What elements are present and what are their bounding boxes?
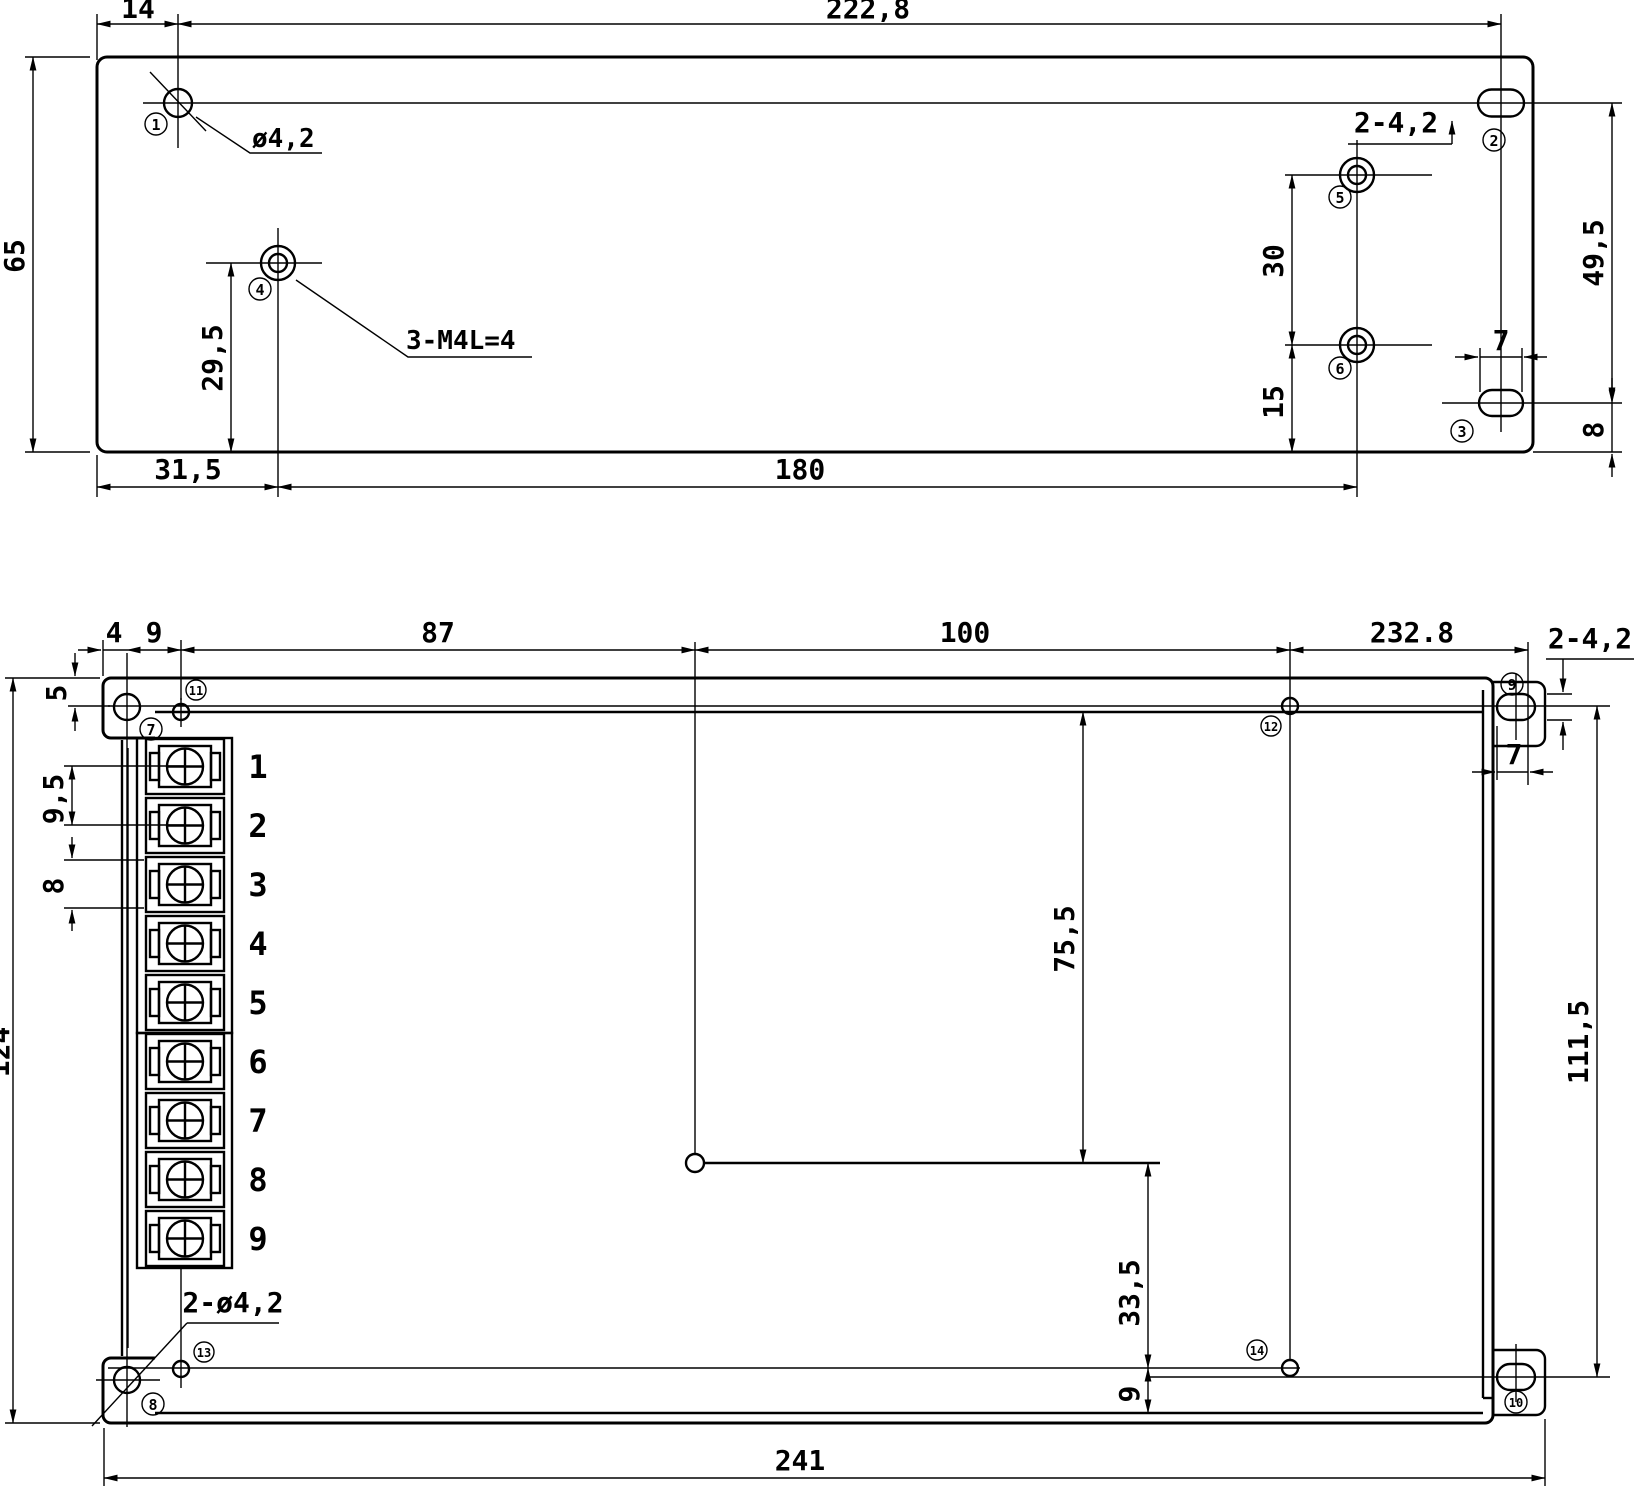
terminal-4 <box>146 916 224 971</box>
slot-pair-label-top: 2-4,2 <box>1354 106 1438 139</box>
terminal-8-number: 8 <box>248 1161 267 1199</box>
callout-12-number: 12 <box>1264 720 1278 734</box>
dim-49-5: 49,5 <box>1577 103 1612 403</box>
dim-75-5: 75,5 <box>1048 712 1083 1163</box>
dim-31-5-value: 31,5 <box>154 453 221 486</box>
dim-33-5-value: 33,5 <box>1113 1259 1146 1326</box>
dim-9-value: 9 <box>146 616 163 649</box>
terminal-6 <box>146 1034 224 1089</box>
dim-100-value: 100 <box>940 616 991 649</box>
terminal-2-number: 2 <box>248 807 267 845</box>
slot-pair-label-bottom: 2-4,2 <box>1546 622 1634 750</box>
dim-111-5-value: 111,5 <box>1562 1000 1595 1084</box>
top-view: ø4,2 1 4 3-M4L=4 5 6 <box>0 0 1622 497</box>
terminal-1-number: 1 <box>248 748 267 786</box>
dim-7-value: 7 <box>1493 324 1510 357</box>
bottom-view-body-outline <box>103 678 1493 1423</box>
dim-9-5-value: 9,5 <box>37 774 70 825</box>
dim-30: 30 <box>1257 175 1292 345</box>
callout-2-number: 2 <box>1489 132 1498 150</box>
callout-8-number: 8 <box>148 1396 157 1414</box>
callout-11-number: 11 <box>189 684 203 698</box>
dim-180-value: 180 <box>775 453 826 486</box>
dim-8-right: 8 <box>1533 378 1622 477</box>
dim-232-8-value: 232.8 <box>1370 616 1454 649</box>
callout-8: 8 <box>142 1393 164 1415</box>
callout-4-number: 4 <box>255 281 264 299</box>
terminal-7-number: 7 <box>248 1102 267 1140</box>
dim-15-value: 15 <box>1257 385 1290 419</box>
dim-5-value: 5 <box>40 685 73 702</box>
slot-pair-label-text: 2-4,2 <box>1548 622 1632 655</box>
dim-111-5: 111,5 <box>1562 706 1597 1377</box>
dim-4-value: 4 <box>106 616 123 649</box>
dim-87-value: 87 <box>421 616 455 649</box>
dim-241-value: 241 <box>775 1444 826 1477</box>
callout-10-number: 10 <box>1509 1396 1523 1410</box>
terminal-9 <box>146 1211 224 1266</box>
dim-180: 180 <box>278 453 1357 487</box>
terminal-5 <box>146 975 224 1030</box>
callout-5: 5 <box>1329 186 1351 208</box>
callout-4: 4 <box>249 278 271 300</box>
dim-33-5: 33,5 <box>1113 1163 1148 1368</box>
callout-13-number: 13 <box>197 1346 211 1360</box>
callout-1: 1 <box>145 113 167 135</box>
slot-10 <box>1497 1344 1535 1402</box>
terminal-3-number: 3 <box>248 866 267 904</box>
bottom-view: 9 10 1 2 3 4 5 6 <box>0 616 1634 1486</box>
dim-9: 9 <box>127 616 181 650</box>
terminal-7 <box>146 1093 224 1148</box>
hole-pair-label-text: 2-ø4,2 <box>182 1286 283 1319</box>
center-hole <box>686 1154 704 1172</box>
dim-100: 100 <box>695 616 1290 650</box>
callout-7: 7 <box>140 718 162 740</box>
dim-124-value: 124 <box>0 1027 16 1078</box>
callout-9: 9 <box>1501 673 1523 695</box>
dim-49-5-value: 49,5 <box>1577 219 1610 286</box>
dim-8-left-value: 8 <box>37 878 70 895</box>
dim-14-value: 14 <box>121 0 155 25</box>
dim-30-value: 30 <box>1257 244 1290 278</box>
dim-75-5-value: 75,5 <box>1048 905 1081 972</box>
drawing-canvas: ø4,2 1 4 3-M4L=4 5 6 <box>0 0 1637 1488</box>
terminal-6-number: 6 <box>248 1043 267 1081</box>
callout-5-number: 5 <box>1335 189 1344 207</box>
dim-29-5-value: 29,5 <box>196 324 229 391</box>
callout-12: 12 <box>1261 716 1281 736</box>
top-view-body-outline <box>97 57 1533 452</box>
dim-15: 15 <box>1257 345 1292 452</box>
dim-65: 65 <box>0 57 90 452</box>
callout-3: 3 <box>1451 420 1473 442</box>
dim-9-5: 9,5 <box>37 766 186 825</box>
hole-dia-label: ø4,2 <box>252 124 315 154</box>
terminal-3 <box>146 857 224 912</box>
callout-11: 11 <box>186 680 206 700</box>
dim-232-8: 232.8 <box>1290 616 1528 650</box>
terminal-8 <box>146 1152 224 1207</box>
dim-31-5: 31,5 <box>97 453 278 497</box>
dim-9-bottom-value: 9 <box>1113 1386 1146 1403</box>
dim-222-8: 222,8 <box>178 0 1501 25</box>
hole-pair-label: 2-ø4,2 <box>92 1286 284 1426</box>
dim-8-value: 8 <box>1577 422 1610 439</box>
callout-6: 6 <box>1329 357 1351 379</box>
terminal-9-number: 9 <box>248 1220 267 1258</box>
dim-5: 5 <box>5 653 110 731</box>
callout-6-number: 6 <box>1335 360 1344 378</box>
terminal-block: 1 2 3 4 5 6 7 8 9 <box>137 738 268 1268</box>
dim-7-bottom-value: 7 <box>1506 738 1523 771</box>
dim-65-value: 65 <box>0 239 31 273</box>
callout-14-number: 14 <box>1250 1344 1264 1358</box>
dim-14: 14 <box>97 0 178 60</box>
dim-87: 87 <box>181 616 695 650</box>
dim-222-8-value: 222,8 <box>826 0 910 25</box>
callout-7-number: 7 <box>146 721 155 739</box>
dim-241: 241 <box>104 1419 1545 1486</box>
callout-13: 13 <box>194 1342 214 1362</box>
callout-3-number: 3 <box>1457 423 1466 441</box>
dim-9-bottom: 9 <box>1113 1368 1148 1413</box>
dim-29-5: 29,5 <box>196 263 231 452</box>
cad-drawing: ø4,2 1 4 3-M4L=4 5 6 <box>0 0 1637 1488</box>
thread-label: 3-M4L=4 <box>406 326 516 356</box>
callout-9-number: 9 <box>1507 676 1516 694</box>
terminal-5-number: 5 <box>248 984 267 1022</box>
callout-1-number: 1 <box>151 116 160 134</box>
callout-14: 14 <box>1247 1340 1267 1360</box>
terminal-4-number: 4 <box>248 925 267 963</box>
